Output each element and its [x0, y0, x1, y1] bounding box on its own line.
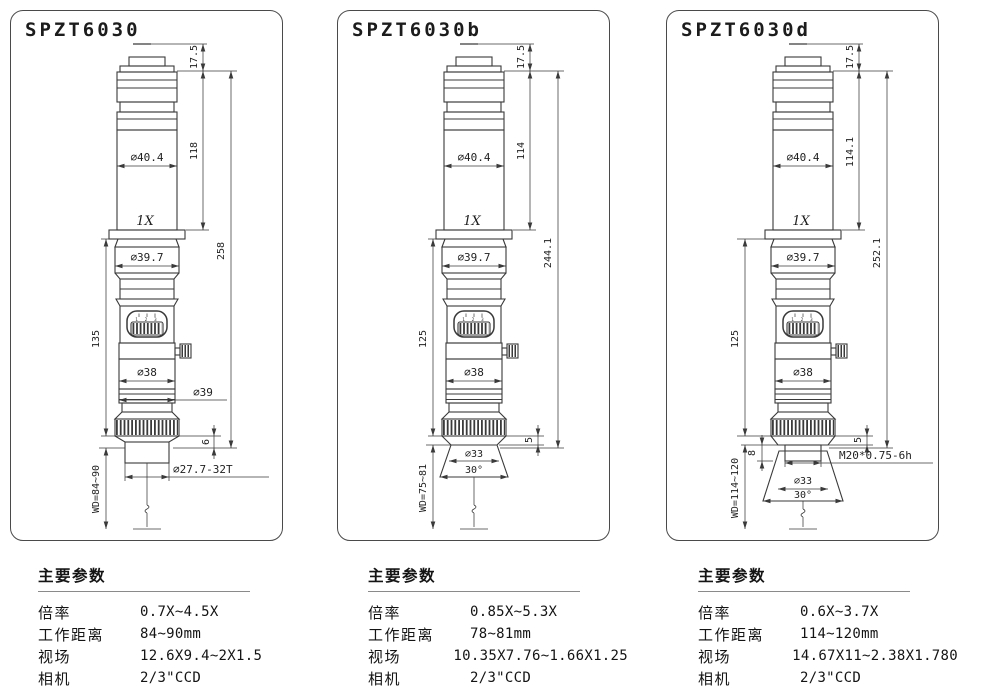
dim-body-dia-label: ∅40.4 [457, 151, 490, 164]
dim-wd-label: WD=84~90 [91, 465, 102, 513]
dim-cone-angle-label: 30° [794, 490, 812, 501]
panel-spzt6030b: SPZT6030b 17.5 114 244.1 ∅40.4 1 2 3 [337, 10, 610, 541]
specs-divider [368, 591, 580, 592]
dim-thread-label: M20*0.75-6h [839, 449, 912, 462]
dim-total-length-label: 244.1 [543, 238, 554, 268]
spec-row-camera: 相机 2/3"CCD [368, 667, 628, 689]
spec-value: 0.7X~4.5X [140, 604, 219, 620]
dim-flange-height-label: 17.5 [189, 45, 200, 69]
specs-table-spzt6030d: 主要参数 倍率 0.6X~3.7X 工作距离 114~120mm 视场 14.6… [698, 564, 958, 689]
dim-cone-dia-label: ∅33 [794, 476, 812, 487]
panel-spzt6030d: SPZT6030d [666, 10, 939, 541]
spec-label: 相机 [38, 668, 140, 689]
specs-table-spzt6030: 主要参数 倍率 0.7X~4.5X 工作距离 84~90mm 视场 12.6X9… [38, 564, 298, 689]
spec-value: 114~120mm [800, 626, 879, 642]
specs-divider [38, 591, 250, 592]
dim-neck-dia-label: ∅39.7 [457, 251, 490, 264]
dim-mid-dia-label: ∅38 [793, 366, 813, 379]
specs-header: 主要参数 [368, 564, 628, 586]
spec-value: 84~90mm [140, 626, 201, 642]
dim-step-label: 5 [524, 437, 535, 443]
spec-value: 78~81mm [470, 626, 531, 642]
lens-technical-drawing: 17.5 118 258 ∅40.4 1 2 3 1X ∅39.7 135 ∅3… [11, 11, 284, 539]
dim-lower-length-label: 125 [418, 330, 429, 348]
spec-row-camera: 相机 2/3"CCD [698, 667, 958, 689]
spec-value: 14.67X11~2.38X1.780 [792, 648, 958, 664]
dim-flange-height-label: 17.5 [516, 45, 527, 69]
panel-spzt6030: SPZT6030 17.5 118 258 ∅40. [10, 10, 283, 541]
spec-label: 视场 [698, 646, 792, 667]
dim-mount-step-label: 8 [747, 450, 758, 456]
dim-flange-height-label: 17.5 [845, 45, 856, 69]
spec-value: 2/3"CCD [470, 670, 531, 686]
magnification-label: 1X [463, 214, 481, 229]
spec-value: 12.6X9.4~2X1.5 [140, 648, 262, 664]
spec-row-field-of-view: 视场 14.67X11~2.38X1.780 [698, 645, 958, 667]
dim-step-label: 6 [201, 439, 212, 445]
spec-value: 0.6X~3.7X [800, 604, 879, 620]
magnification-label: 1X [792, 214, 810, 229]
dim-total-length-label: 252.1 [872, 238, 883, 268]
spec-label: 工作距离 [698, 624, 800, 645]
spec-value: 2/3"CCD [140, 670, 201, 686]
dim-body-length-label: 118 [189, 142, 200, 160]
dim-body-dia-label: ∅40.4 [130, 151, 163, 164]
dim-body-length-label: 114 [516, 142, 527, 160]
dim-lower-length-label: 135 [91, 330, 102, 348]
zoom-scale-marks: 1 2 3 [135, 317, 159, 323]
spec-label: 相机 [698, 668, 800, 689]
zoom-scale-marks: 1 2 3 [462, 317, 486, 323]
specs-divider [698, 591, 910, 592]
spec-row-working-distance: 工作距离 114~120mm [698, 623, 958, 645]
spec-value: 0.85X~5.3X [470, 604, 557, 620]
spec-label: 倍率 [698, 602, 800, 623]
specs-header: 主要参数 [38, 564, 298, 586]
spec-row-field-of-view: 视场 12.6X9.4~2X1.5 [38, 645, 298, 667]
spec-row-field-of-view: 视场 10.35X7.76~1.66X1.25 [368, 645, 628, 667]
spec-label: 视场 [38, 646, 140, 667]
spec-row-working-distance: 工作距离 84~90mm [38, 623, 298, 645]
spec-label: 工作距离 [38, 624, 140, 645]
dim-knurl-dia-label: ∅39 [193, 386, 213, 399]
lens-technical-drawing: 17.5 114 244.1 ∅40.4 1 2 3 1X ∅39.7 125 … [338, 11, 611, 539]
zoom-scale-marks: 1 2 3 [791, 317, 815, 323]
spec-row-magnification: 倍率 0.6X~3.7X [698, 601, 958, 623]
dim-wd-label: WD=75~81 [418, 464, 429, 512]
dim-neck-dia-label: ∅39.7 [130, 251, 163, 264]
spec-value: 10.35X7.76~1.66X1.25 [453, 648, 628, 664]
dim-neck-dia-label: ∅39.7 [786, 251, 819, 264]
spec-row-working-distance: 工作距离 78~81mm [368, 623, 628, 645]
spec-label: 相机 [368, 668, 470, 689]
specs-table-spzt6030b: 主要参数 倍率 0.85X~5.3X 工作距离 78~81mm 视场 10.35… [368, 564, 628, 689]
dim-cone-dia-label: ∅33 [465, 449, 483, 460]
magnification-label: 1X [136, 214, 154, 229]
dim-body-length-label: 114.1 [845, 137, 856, 167]
spec-row-magnification: 倍率 0.85X~5.3X [368, 601, 628, 623]
dim-tip-label: ∅27.7-32T [173, 463, 233, 476]
specs-header: 主要参数 [698, 564, 958, 586]
spec-row-camera: 相机 2/3"CCD [38, 667, 298, 689]
spec-label: 倍率 [38, 602, 140, 623]
dim-total-length-label: 258 [216, 242, 227, 260]
dim-step-label: 5 [853, 437, 864, 443]
dim-cone-angle-label: 30° [465, 465, 483, 476]
dim-body-dia-label: ∅40.4 [786, 151, 819, 164]
dim-wd-label: WD=114~120 [730, 458, 741, 518]
dim-mid-dia-label: ∅38 [137, 366, 157, 379]
lens-technical-drawing: 17.5 114.1 252.1 ∅40.4 1 2 3 1X ∅39.7 12… [667, 11, 940, 539]
spec-label: 工作距离 [368, 624, 470, 645]
dim-lower-length-label: 125 [730, 330, 741, 348]
spec-row-magnification: 倍率 0.7X~4.5X [38, 601, 298, 623]
dim-mid-dia-label: ∅38 [464, 366, 484, 379]
spec-value: 2/3"CCD [800, 670, 861, 686]
spec-label: 倍率 [368, 602, 470, 623]
spec-label: 视场 [368, 646, 453, 667]
